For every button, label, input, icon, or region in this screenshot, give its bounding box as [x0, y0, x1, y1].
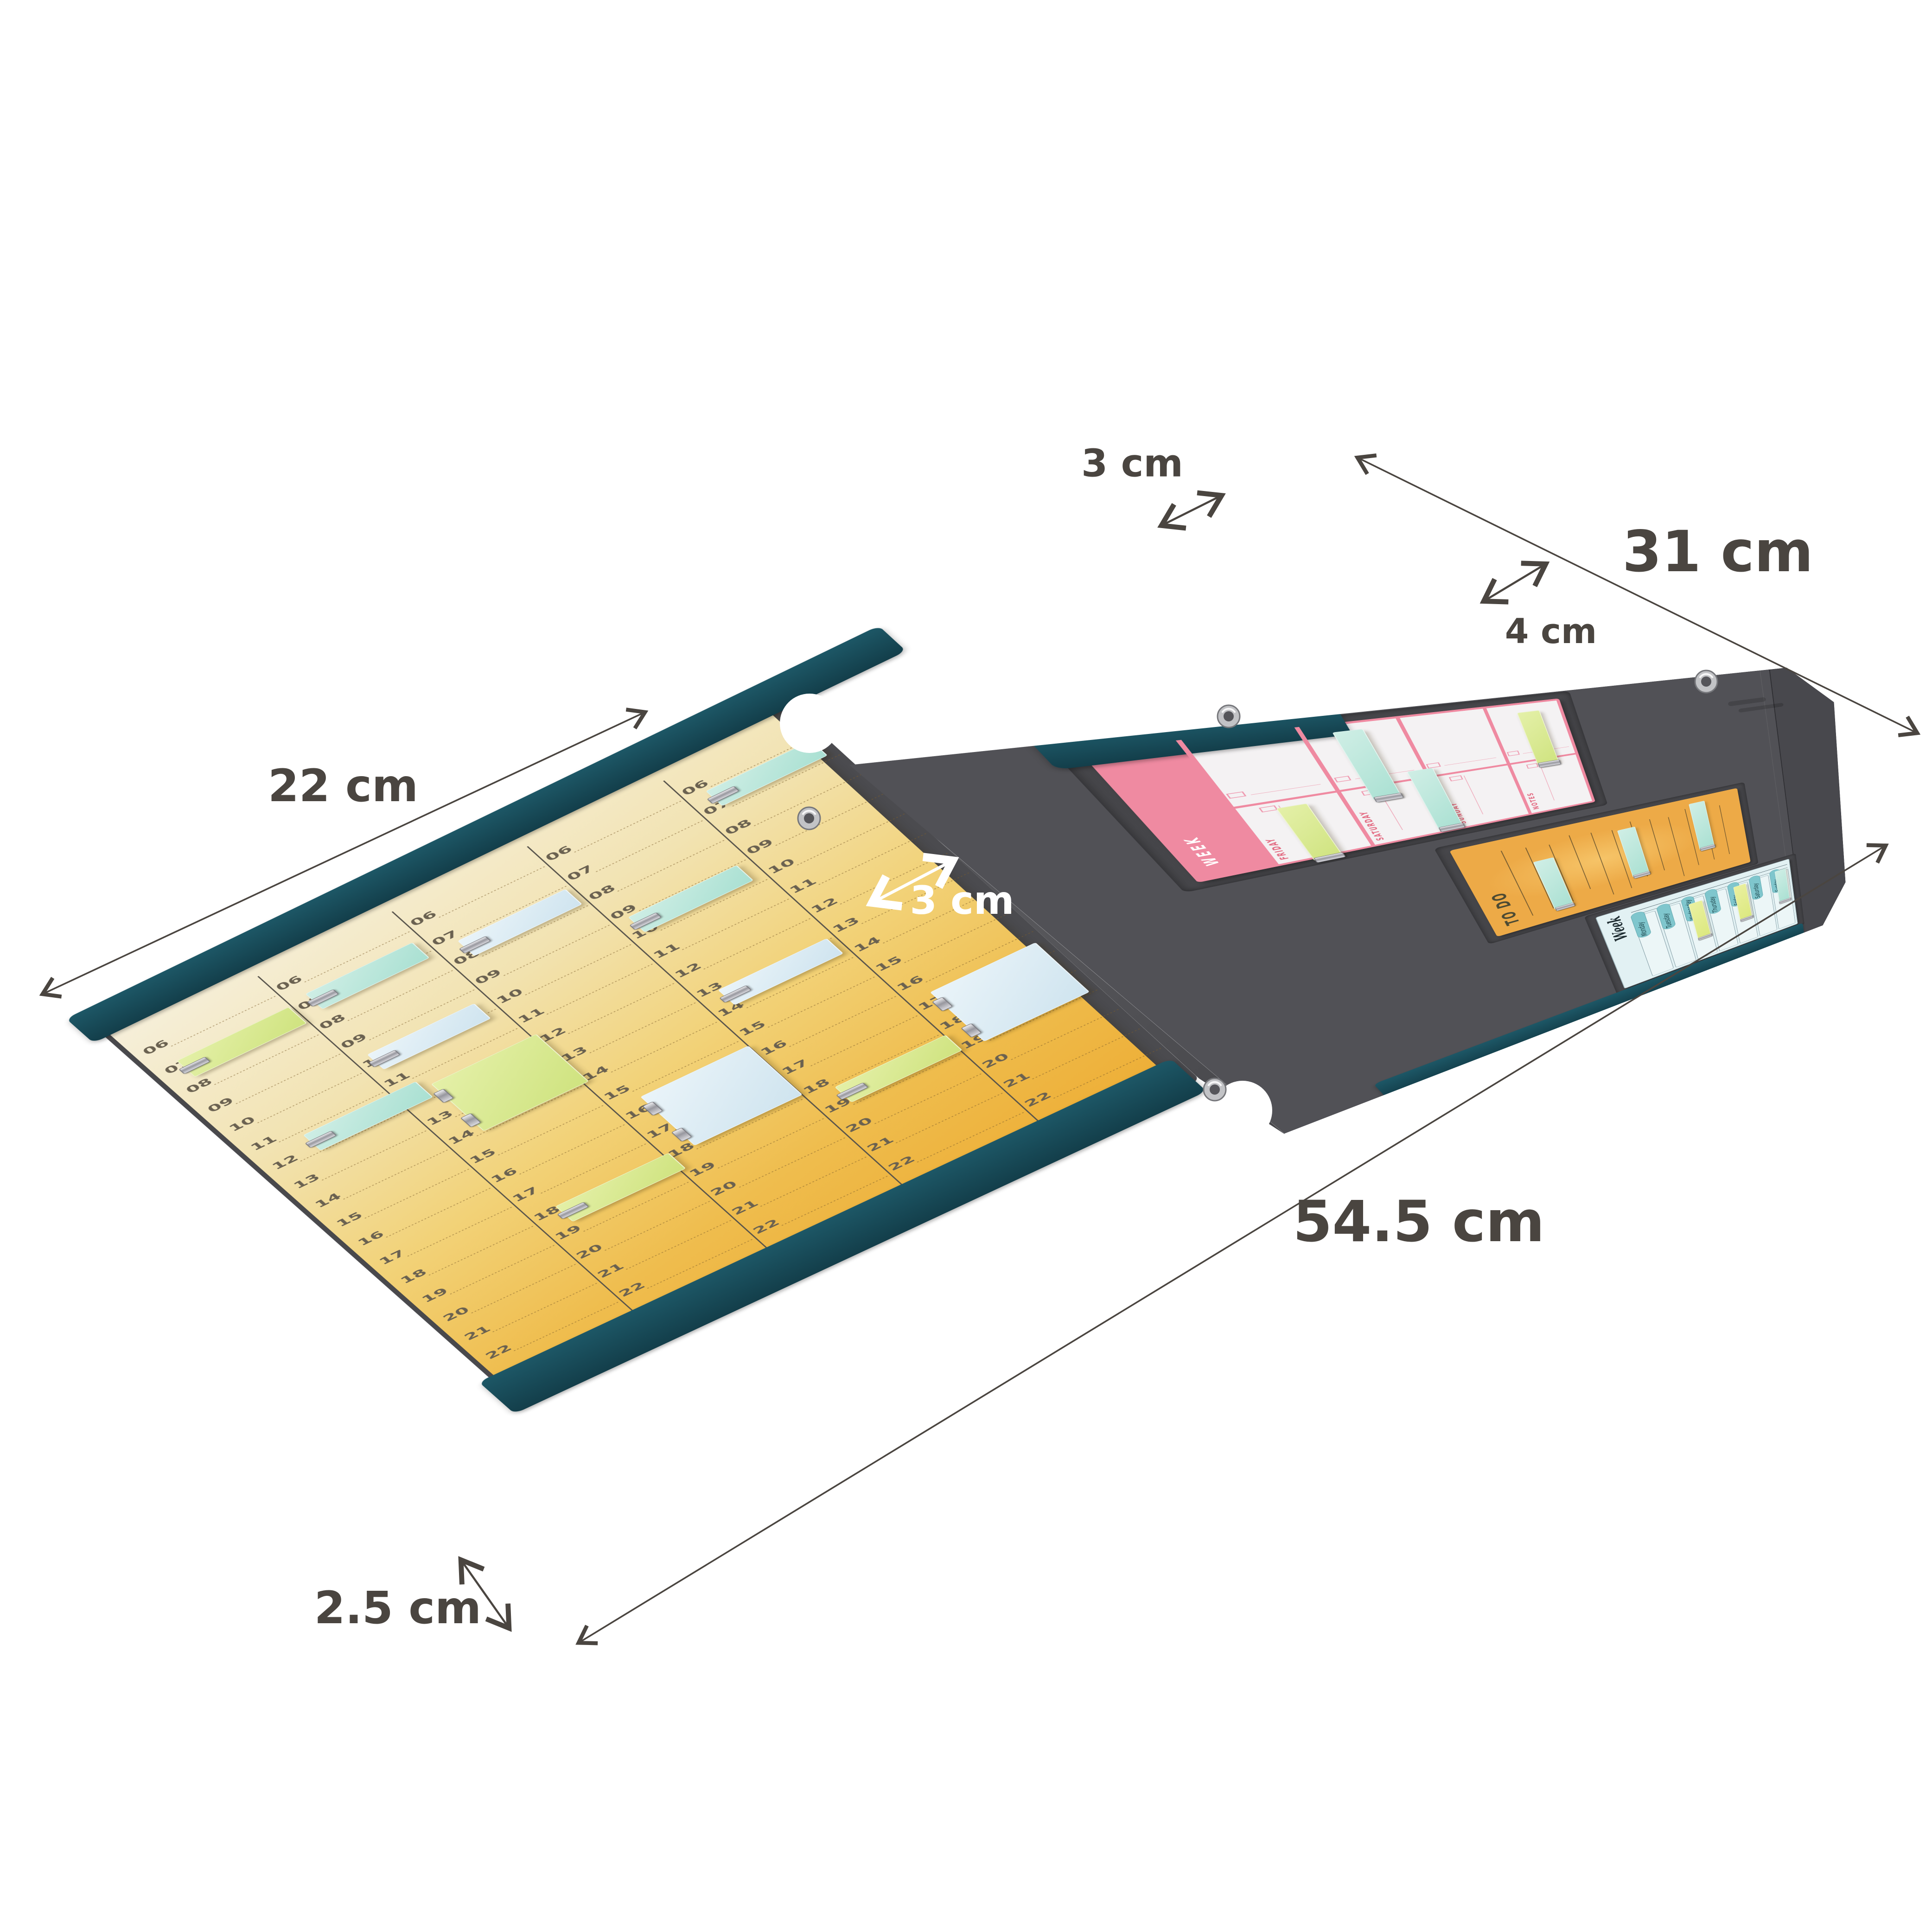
- dim-label-3cm-top: 3 cm: [1081, 442, 1183, 486]
- spine-notch-top: [780, 694, 839, 753]
- dim-label-31cm: 31 cm: [1622, 519, 1813, 585]
- grommet-icon: [1695, 670, 1717, 693]
- dim-label-22cm: 22 cm: [268, 760, 418, 812]
- dim-label-54.5cm: 54.5 cm: [1293, 1189, 1545, 1255]
- scene-canvas: 0606060606070707070708080808080909090909…: [0, 0, 1932, 1932]
- dim-arrow-4cm: [1485, 565, 1544, 600]
- dim-label-3cm-spine: 3 cm: [910, 878, 1014, 923]
- dim-line-22cm: [44, 713, 644, 994]
- dim-arrow-3cm-top: [1163, 496, 1220, 525]
- grommet-icon: [1204, 1078, 1226, 1101]
- grommet-icon: [1218, 705, 1240, 727]
- grommet-icon: [798, 807, 820, 829]
- dim-label-2.5cm: 2.5 cm: [314, 1582, 481, 1634]
- dim-label-4cm: 4 cm: [1505, 612, 1597, 651]
- dim-line-31cm: [1358, 458, 1916, 733]
- dim-line-54.5cm: [580, 846, 1885, 1642]
- annotation-layer: [0, 0, 1932, 1932]
